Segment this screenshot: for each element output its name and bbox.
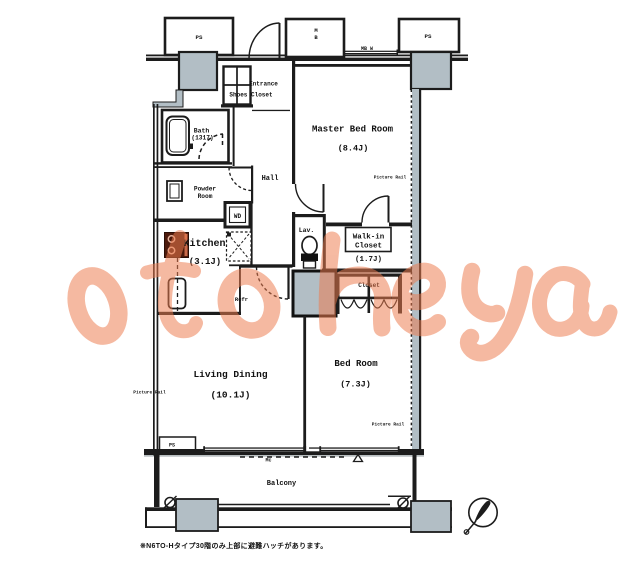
svg-text:Balcony: Balcony (267, 480, 297, 488)
svg-text:Picture Rail: Picture Rail (372, 422, 405, 428)
svg-text:PS: PS (196, 34, 203, 41)
svg-text:Master Bed Room: Master Bed Room (312, 125, 394, 135)
svg-text:PS: PS (425, 33, 432, 40)
svg-text:Mc: Mc (265, 458, 271, 464)
svg-text:(8.4J): (8.4J) (338, 144, 369, 154)
svg-text:Powder: Powder (194, 186, 217, 193)
svg-text:Lav.: Lav. (299, 227, 315, 234)
svg-text:Picture Rail: Picture Rail (374, 175, 407, 181)
svg-text:(1.7J): (1.7J) (355, 256, 382, 264)
svg-text:(10.1J): (10.1J) (211, 390, 251, 401)
svg-text:PS: PS (169, 443, 175, 449)
svg-text:Shoes Closet: Shoes Closet (229, 92, 273, 99)
svg-text:Kitchen: Kitchen (183, 238, 225, 250)
svg-text:Room: Room (198, 193, 213, 200)
svg-text:Bath: Bath (194, 128, 210, 135)
svg-text:Bed Room: Bed Room (334, 359, 378, 369)
svg-text:Refr: Refr (235, 296, 248, 303)
svg-text:Hall: Hall (262, 175, 279, 183)
svg-text:Picture Rail: Picture Rail (133, 390, 166, 396)
svg-text:Living Dining: Living Dining (193, 369, 267, 380)
svg-text:Walk-in: Walk-in (353, 234, 385, 242)
svg-text:※N6TO-Hタイプ30階のみ上部に避難ハッチがあります。: ※N6TO-Hタイプ30階のみ上部に避難ハッチがあります。 (140, 541, 328, 550)
svg-text:Entrance: Entrance (249, 81, 278, 88)
svg-text:(7.3J): (7.3J) (340, 380, 371, 390)
svg-text:WD: WD (234, 213, 242, 220)
svg-text:Closet: Closet (355, 243, 382, 251)
